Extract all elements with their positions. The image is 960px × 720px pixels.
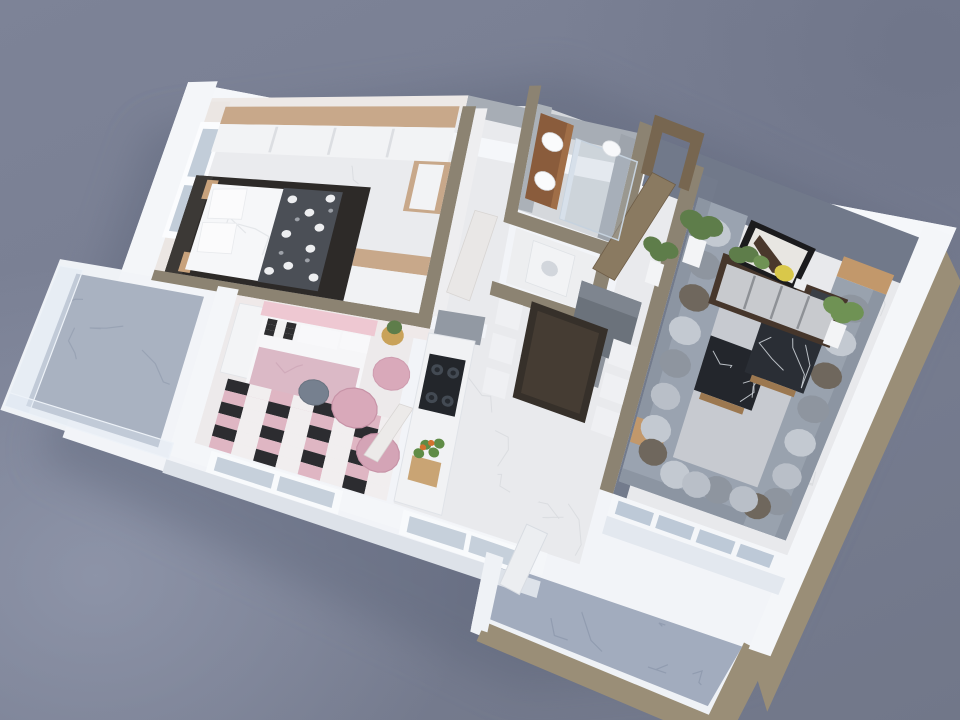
bed1-pillow-right [197, 222, 237, 253]
apartment-3d-floor-plan [0, 0, 960, 720]
pouf-blue [299, 380, 329, 405]
render-canvas [0, 0, 960, 720]
pouf-pink-east [373, 357, 409, 390]
wardrobe1-top-wood [220, 106, 460, 128]
hall-floor-veins [543, 517, 564, 518]
bed1-pillow-left [208, 189, 248, 220]
floor-plan-scene [0, 75, 960, 720]
